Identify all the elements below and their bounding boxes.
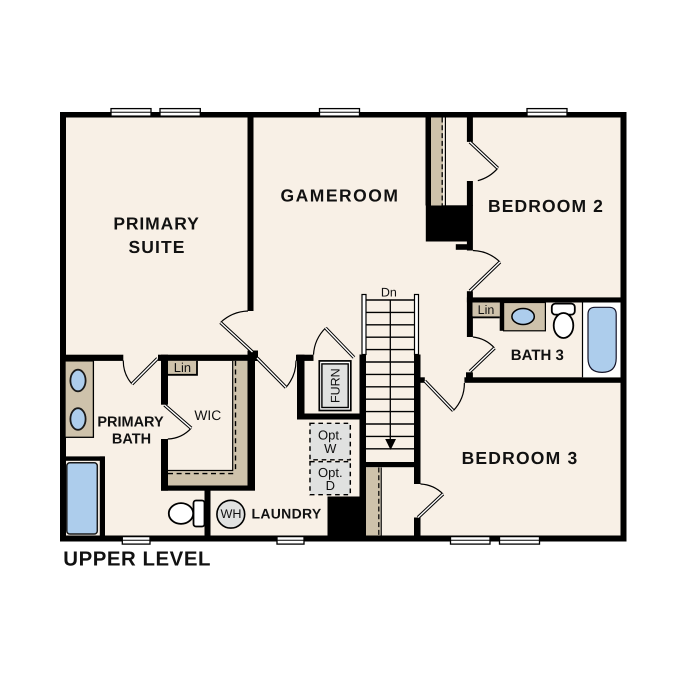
svg-text:SUITE: SUITE	[128, 237, 185, 257]
svg-text:UPPER LEVEL: UPPER LEVEL	[63, 549, 211, 571]
svg-text:D: D	[326, 478, 335, 493]
svg-text:LAUNDRY: LAUNDRY	[252, 505, 322, 521]
svg-text:Lin: Lin	[174, 360, 191, 375]
svg-text:BEDROOM 2: BEDROOM 2	[488, 196, 604, 216]
svg-text:FURN: FURN	[329, 368, 343, 403]
svg-text:Lin: Lin	[478, 303, 495, 317]
svg-text:Dn: Dn	[381, 286, 397, 300]
svg-text:BATH 3: BATH 3	[511, 347, 564, 364]
svg-text:WIC: WIC	[194, 408, 221, 423]
svg-text:PRIMARY: PRIMARY	[97, 415, 164, 431]
svg-text:BATH: BATH	[112, 432, 151, 448]
svg-text:BEDROOM 3: BEDROOM 3	[462, 448, 579, 468]
svg-text:W: W	[324, 441, 337, 456]
svg-text:PRIMARY: PRIMARY	[113, 213, 199, 233]
svg-text:WH: WH	[221, 507, 242, 521]
svg-text:GAMEROOM: GAMEROOM	[281, 186, 400, 206]
